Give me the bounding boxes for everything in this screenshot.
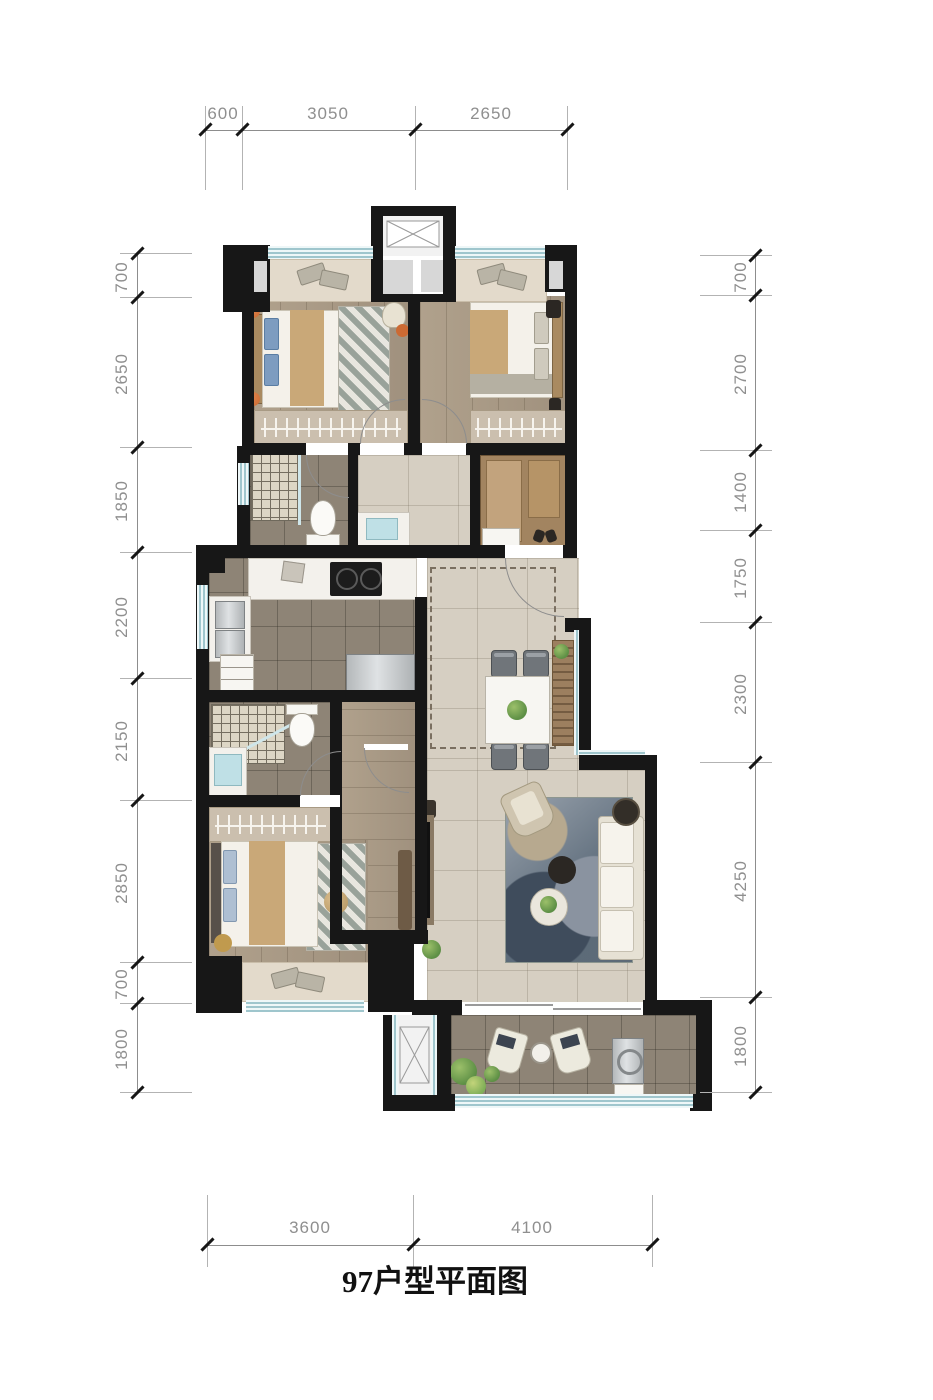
floor-plan-image: 600 3050 2650 3600 4100 700 2650 1850 22… <box>0 0 933 1400</box>
sofa-cushion <box>600 822 634 864</box>
balcony-table <box>530 1042 552 1064</box>
side-table <box>612 798 640 826</box>
dim-label: 4100 <box>502 1218 562 1238</box>
dim-label: 2850 <box>112 853 132 913</box>
washer-door <box>617 1049 643 1075</box>
dim-extension <box>120 552 192 553</box>
master-vanity-sink <box>214 754 242 786</box>
dim-label: 1400 <box>731 462 751 522</box>
dim-label: 4250 <box>731 851 751 911</box>
bathroom1-window <box>238 463 249 505</box>
master-toilet-bowl <box>289 713 315 747</box>
plan-title: 97户型平面图 <box>290 1256 580 1301</box>
master-bay-window <box>246 1000 364 1012</box>
dim-extension <box>700 622 772 623</box>
wall <box>242 250 254 446</box>
wall <box>196 545 505 558</box>
bedroom2-wardrobe <box>470 410 567 445</box>
dim-extension <box>700 450 772 451</box>
balcony-plant <box>484 1066 500 1082</box>
stove-burner <box>360 568 382 590</box>
shaft-cross <box>399 1026 430 1084</box>
wall <box>415 702 427 944</box>
sliding-door-leaf <box>553 1008 641 1010</box>
shaft-hatch <box>431 1015 437 1095</box>
wall <box>368 944 414 1012</box>
master-bed-headboard <box>211 843 221 943</box>
bedroom2-window <box>455 246 545 259</box>
dim-extension <box>120 800 192 801</box>
sofa-cushion <box>600 866 634 908</box>
dim-label: 2150 <box>112 711 132 771</box>
wall <box>412 1000 462 1015</box>
dim-label: 2700 <box>731 344 751 404</box>
wall <box>196 956 242 1013</box>
wall <box>371 206 456 216</box>
corner-shelf <box>281 561 306 584</box>
balcony-plant <box>466 1076 486 1096</box>
dim-extension <box>120 1092 192 1093</box>
dim-line-top <box>205 130 568 131</box>
dim-extension <box>700 1092 772 1093</box>
master-wardrobe <box>209 807 332 842</box>
wall <box>470 455 480 545</box>
bedroom2-door <box>422 443 466 455</box>
closet-shelf <box>528 460 560 518</box>
wall <box>383 1095 445 1111</box>
shower-area <box>251 453 299 521</box>
wall <box>330 930 428 944</box>
master-bed-runner <box>249 841 285 945</box>
wall <box>330 690 342 944</box>
dim-extension <box>700 762 772 763</box>
shower-glass <box>298 453 301 525</box>
wall <box>437 1015 451 1095</box>
bathroom1-door <box>306 443 348 455</box>
dim-label: 2300 <box>731 664 751 724</box>
bed1-runner <box>290 310 324 406</box>
ac-platform-cross <box>386 220 440 248</box>
toilet-bowl <box>310 500 336 536</box>
master-bed-pillow <box>223 850 237 884</box>
kitchen-sink <box>215 601 245 629</box>
dining-window <box>574 630 579 755</box>
dining-chair <box>523 742 549 770</box>
table-plant <box>507 700 527 720</box>
dim-label: 3600 <box>280 1218 340 1238</box>
dim-extension <box>652 1195 653 1267</box>
dim-label: 700 <box>112 247 132 307</box>
vanity-sink <box>366 518 398 540</box>
entry-door <box>505 545 563 558</box>
dim-extension <box>120 678 192 679</box>
bedroom1-door <box>360 443 404 455</box>
sofa-cushion <box>600 910 634 952</box>
sliding-door-leaf <box>465 1004 553 1006</box>
wall <box>565 292 577 555</box>
dim-label: 700 <box>731 247 751 307</box>
dim-extension <box>700 530 772 531</box>
dim-extension <box>567 106 568 190</box>
dining-window <box>579 750 645 755</box>
wall <box>209 795 300 807</box>
dim-label: 3050 <box>298 104 358 124</box>
wall <box>579 625 591 763</box>
wall <box>348 455 358 545</box>
wall <box>690 1094 712 1111</box>
dining-chair <box>491 650 517 678</box>
dim-extension <box>415 106 416 190</box>
dim-label: 2200 <box>112 587 132 647</box>
column <box>549 261 563 289</box>
wall <box>563 545 577 558</box>
shaft-hatch <box>392 1015 398 1095</box>
wall <box>196 690 427 702</box>
wall <box>696 1015 712 1099</box>
kitchen-window <box>197 585 208 649</box>
column <box>421 260 443 292</box>
dim-extension <box>700 997 772 998</box>
master-bed-pillow <box>223 888 237 922</box>
dim-label: 2650 <box>112 344 132 404</box>
wall <box>466 443 577 455</box>
dim-label: 1800 <box>112 1019 132 1079</box>
tv-screen <box>427 822 430 918</box>
kitchen-shelf-unit <box>220 654 254 692</box>
corridor-console <box>398 850 412 930</box>
wall <box>242 443 306 455</box>
wall <box>645 755 657 1015</box>
dim-line-left <box>137 253 138 1092</box>
dining-chair <box>491 742 517 770</box>
stove-burner <box>336 568 358 590</box>
dim-extension <box>207 1195 208 1267</box>
coffee-table-dark <box>548 856 576 884</box>
wall <box>408 296 420 443</box>
bedroom1-window <box>268 246 373 259</box>
nightstand <box>546 300 561 318</box>
dim-line-bottom <box>207 1245 652 1246</box>
coffee-table-plant <box>540 896 557 913</box>
dim-label: 2650 <box>461 104 521 124</box>
bathroom2-door <box>300 795 340 807</box>
balcony-window <box>455 1094 693 1108</box>
wall <box>404 443 422 455</box>
sideboard-plant <box>554 644 569 659</box>
dim-line-right <box>755 255 756 1092</box>
dim-extension <box>120 447 192 448</box>
dim-label: 700 <box>112 954 132 1014</box>
dining-chair <box>523 650 549 678</box>
bed1-pillow <box>264 354 279 386</box>
dim-label: 600 <box>193 104 253 124</box>
dim-label: 1850 <box>112 471 132 531</box>
entry-bench <box>482 528 520 546</box>
dim-label: 1800 <box>731 1016 751 1076</box>
column <box>383 260 413 294</box>
bed1-pillow <box>264 318 279 350</box>
round-rug <box>214 934 232 952</box>
wall <box>348 443 360 455</box>
wall <box>415 597 427 702</box>
wall <box>643 1000 712 1015</box>
bed2-pillow <box>534 348 549 380</box>
dim-label: 1750 <box>731 548 751 608</box>
wall <box>383 1015 392 1095</box>
